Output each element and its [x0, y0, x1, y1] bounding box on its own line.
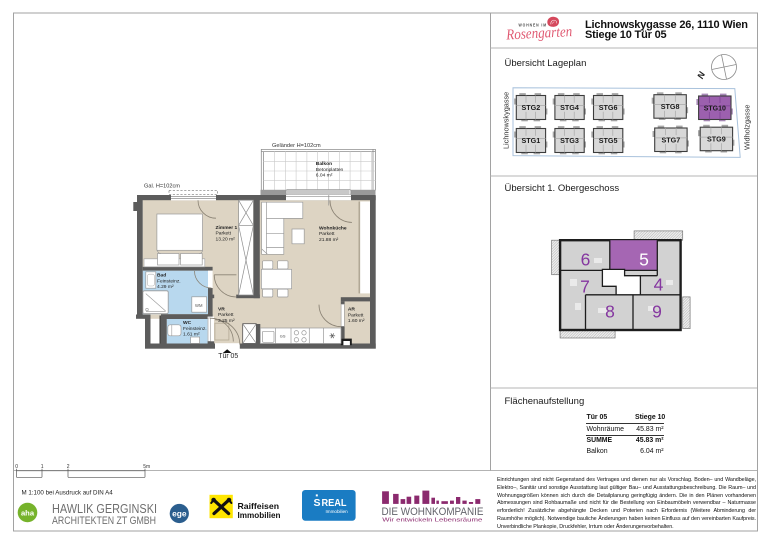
svg-text:Parkett: Parkett	[216, 231, 232, 237]
svg-text:Lichnowskygasse: Lichnowskygasse	[502, 92, 511, 149]
svg-text:1: 1	[41, 464, 44, 470]
svg-text:2: 2	[67, 464, 70, 470]
svg-text:5: 5	[639, 250, 649, 270]
svg-text:Parkett: Parkett	[319, 231, 335, 237]
svg-text:Rosengarten: Rosengarten	[505, 24, 573, 43]
svg-text:3.25 m²: 3.25 m²	[218, 318, 235, 324]
svg-text:0: 0	[15, 464, 18, 470]
svg-text:Wohnküche: Wohnküche	[319, 226, 347, 232]
svg-text:6.04 m²: 6.04 m²	[316, 172, 333, 178]
svg-text:ARCHITEKTEN ZT GMBH: ARCHITEKTEN ZT GMBH	[52, 515, 156, 527]
svg-text:STG7: STG7	[662, 135, 681, 144]
svg-text:13.20 m²: 13.20 m²	[216, 236, 236, 242]
svg-text:Parkett: Parkett	[348, 312, 364, 318]
svg-text:Gal. H=102cm: Gal. H=102cm	[144, 183, 180, 189]
svg-text:Widholzgasse: Widholzgasse	[743, 105, 752, 150]
svg-text:STG3: STG3	[560, 136, 579, 145]
svg-text:REAL: REAL	[322, 497, 348, 509]
svg-text:7: 7	[580, 277, 590, 297]
svg-text:Wir entwickeln Lebensräume: Wir entwickeln Lebensräume	[382, 518, 482, 524]
svg-text:Betonplatten: Betonplatten	[316, 167, 344, 173]
svg-text:Immobilien: Immobilien	[238, 510, 281, 520]
svg-text:Tür 05: Tür 05	[218, 353, 238, 360]
svg-text:M 1:100 bei Ausdruck auf DIN A: M 1:100 bei Ausdruck auf DIN A4	[22, 490, 114, 497]
svg-text:Feinsteinz.: Feinsteinz.	[183, 326, 207, 332]
svg-text:VR: VR	[218, 306, 225, 312]
svg-text:Balkon: Balkon	[316, 161, 332, 167]
svg-text:1.60 m²: 1.60 m²	[348, 318, 365, 324]
svg-text:STG5: STG5	[599, 136, 618, 145]
svg-text:aha: aha	[21, 508, 35, 517]
svg-text:STG9: STG9	[707, 135, 726, 144]
svg-text:AR: AR	[348, 307, 356, 313]
svg-text:8: 8	[605, 302, 615, 322]
svg-text:21.88 m²: 21.88 m²	[319, 237, 339, 243]
svg-text:STG10: STG10	[704, 105, 726, 112]
svg-text:STG6: STG6	[599, 103, 618, 112]
svg-text:1.61 m²: 1.61 m²	[183, 332, 200, 338]
svg-text:Immobilien: Immobilien	[326, 509, 349, 514]
svg-text:Zimmer 1: Zimmer 1	[216, 225, 238, 231]
svg-text:4: 4	[654, 275, 664, 295]
svg-text:STG8: STG8	[661, 102, 680, 111]
svg-text:Parkett: Parkett	[218, 312, 234, 318]
svg-text:STG2: STG2	[522, 103, 541, 112]
svg-text:WC: WC	[183, 320, 192, 326]
svg-text:Geländer H=102cm: Geländer H=102cm	[272, 143, 321, 149]
svg-text:4.29 m²: 4.29 m²	[157, 284, 174, 290]
svg-text:Feinsteinz.: Feinsteinz.	[157, 278, 181, 284]
svg-text:6: 6	[581, 250, 591, 270]
svg-text:Bad: Bad	[157, 273, 166, 279]
svg-text:GS: GS	[280, 334, 286, 339]
svg-text:STG1: STG1	[522, 136, 541, 145]
svg-text:S: S	[314, 497, 321, 509]
svg-text:DIE WOHNKOMPANIE: DIE WOHNKOMPANIE	[382, 506, 484, 518]
svg-text:9: 9	[652, 302, 662, 322]
svg-text:STG4: STG4	[560, 103, 579, 112]
svg-text:WM: WM	[195, 303, 203, 308]
svg-text:ege: ege	[172, 509, 187, 519]
svg-text:N: N	[695, 70, 707, 81]
svg-text:5m: 5m	[143, 464, 150, 470]
